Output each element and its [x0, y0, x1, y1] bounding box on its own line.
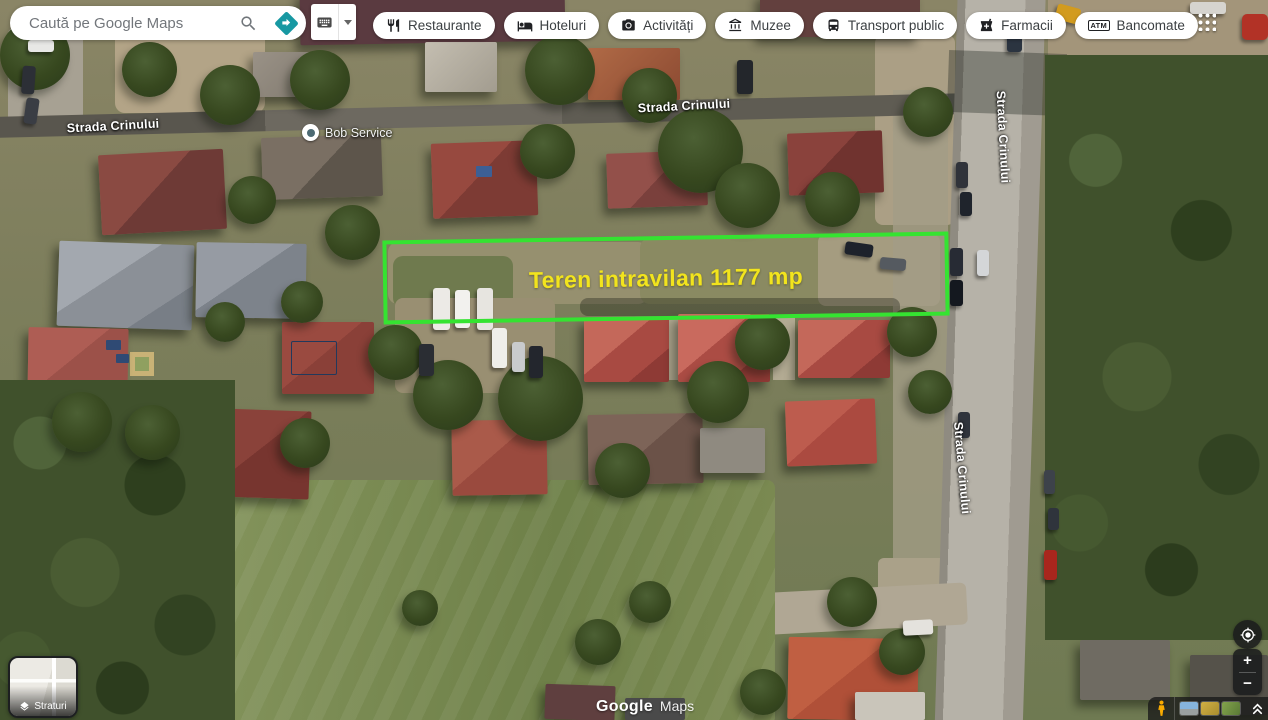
chip-label: Bancomate	[1117, 18, 1185, 33]
house	[584, 318, 669, 382]
house	[425, 42, 497, 92]
car	[956, 162, 968, 188]
plot-area-label: Teren intravilan 1177 mp	[529, 262, 803, 293]
museum-icon	[728, 18, 743, 33]
chip-museums[interactable]: Muzee	[715, 12, 804, 39]
tree	[687, 361, 749, 423]
sandbox	[130, 352, 154, 376]
chip-public-transport[interactable]: Transport public	[813, 12, 957, 39]
solar-panel	[106, 340, 121, 350]
car	[960, 192, 972, 216]
tree	[52, 392, 112, 452]
chip-restaurants[interactable]: Restaurante	[373, 12, 495, 39]
satellite-map[interactable]: Teren intravilan 1177 mp Strada Crinului…	[0, 0, 1268, 720]
chip-label: Muzee	[750, 18, 791, 33]
tree	[228, 176, 276, 224]
camera-icon	[621, 18, 636, 33]
tree	[595, 443, 650, 498]
bus-icon	[826, 18, 841, 33]
house	[98, 149, 227, 235]
zoom-controls: + −	[1233, 649, 1262, 695]
house	[1080, 640, 1170, 700]
house	[798, 320, 890, 378]
solar-panel	[476, 166, 492, 177]
land-plot-outline: Teren intravilan 1177 mp	[382, 232, 949, 325]
tree	[735, 315, 790, 370]
tree	[281, 281, 323, 323]
directions-diamond-icon	[274, 11, 299, 36]
van	[492, 328, 507, 368]
car	[1048, 508, 1059, 530]
tree	[525, 35, 595, 105]
tree	[879, 629, 925, 675]
pickup-truck	[903, 619, 934, 636]
google-maps-window: Teren intravilan 1177 mp Strada Crinului…	[0, 0, 1268, 720]
chip-label: Restaurante	[408, 18, 482, 33]
chip-hotels[interactable]: Hoteluri	[504, 12, 600, 39]
car	[950, 248, 963, 276]
car	[28, 40, 54, 52]
imagery-thumbnails	[1175, 702, 1245, 715]
car	[1044, 470, 1055, 494]
hotel-bed-icon	[517, 18, 533, 34]
tree	[290, 50, 350, 110]
tree	[740, 669, 786, 715]
tree	[280, 418, 330, 468]
house	[855, 692, 925, 720]
house	[57, 241, 195, 331]
chip-label: Hoteluri	[540, 18, 587, 33]
my-location-icon	[1240, 627, 1256, 643]
red-machine	[1242, 14, 1268, 40]
car	[512, 342, 525, 372]
input-method-selector[interactable]	[311, 4, 356, 40]
tree	[629, 581, 671, 623]
chip-activities[interactable]: Activități	[608, 12, 706, 39]
thumbnail-yellow-field[interactable]	[1201, 702, 1219, 715]
chip-pharmacies[interactable]: Farmacii	[966, 12, 1066, 39]
tree	[125, 405, 180, 460]
tree	[715, 163, 780, 228]
layers-icon	[19, 701, 30, 712]
atm-icon: ATM	[1088, 20, 1110, 32]
pegman[interactable]	[1148, 697, 1175, 720]
solar-panel	[116, 354, 129, 363]
car	[977, 250, 989, 276]
imagery-bar	[1148, 697, 1268, 720]
grass-field-stripes	[220, 480, 775, 720]
thumbnail-streetview[interactable]	[1180, 702, 1198, 715]
poi-pin-icon	[302, 124, 319, 141]
tree	[325, 205, 380, 260]
tree	[122, 42, 177, 97]
tree	[903, 87, 953, 137]
car	[950, 280, 963, 306]
chip-atms[interactable]: ATM Bancomate	[1075, 12, 1198, 39]
search-bar[interactable]	[10, 6, 306, 40]
watermark-brand: Google	[596, 698, 653, 716]
tree	[575, 619, 621, 665]
tree	[908, 370, 952, 414]
tree	[827, 577, 877, 627]
car	[529, 346, 543, 378]
pharmacy-icon	[979, 18, 994, 33]
watermark-product: Maps	[660, 698, 694, 714]
zoom-in-button[interactable]: +	[1233, 649, 1262, 672]
chip-label: Activități	[643, 18, 693, 33]
car	[21, 66, 36, 95]
tree	[805, 172, 860, 227]
tree	[368, 325, 423, 380]
search-button[interactable]	[230, 6, 266, 40]
keyboard-icon	[311, 4, 339, 40]
category-chips: Restaurante Hoteluri Activități Muzee Tr…	[373, 12, 1198, 39]
tree	[520, 124, 575, 179]
tree	[402, 590, 438, 626]
layers-control[interactable]: Straturi	[8, 656, 78, 718]
collapse-chevron-icon[interactable]	[1251, 702, 1264, 716]
red-car	[1044, 550, 1057, 580]
layers-label: Straturi	[34, 701, 66, 712]
tree	[205, 302, 245, 342]
forest	[1045, 55, 1268, 640]
zoom-out-button[interactable]: −	[1233, 673, 1262, 696]
poi-bob-service[interactable]: Bob Service	[302, 124, 392, 141]
thumbnail-green-field[interactable]	[1222, 702, 1240, 715]
google-maps-watermark: Google Maps	[596, 698, 694, 716]
house	[261, 134, 383, 200]
chip-label: Farmacii	[1001, 18, 1053, 33]
directions-button[interactable]	[266, 6, 306, 40]
restaurant-icon	[386, 18, 401, 33]
chevron-down-icon[interactable]	[339, 20, 356, 25]
poi-name: Bob Service	[325, 126, 392, 140]
house	[700, 428, 765, 473]
chip-label: Transport public	[848, 18, 944, 33]
layers-label-strip: Straturi	[10, 686, 76, 716]
google-apps-grid-icon[interactable]	[1196, 11, 1216, 31]
my-location-button[interactable]	[1233, 620, 1262, 649]
car	[419, 344, 434, 376]
tree	[200, 65, 260, 125]
search-input[interactable]	[10, 15, 230, 32]
solar-panel-array	[292, 342, 336, 374]
car	[737, 60, 753, 94]
house	[785, 398, 877, 466]
search-icon	[239, 14, 258, 33]
